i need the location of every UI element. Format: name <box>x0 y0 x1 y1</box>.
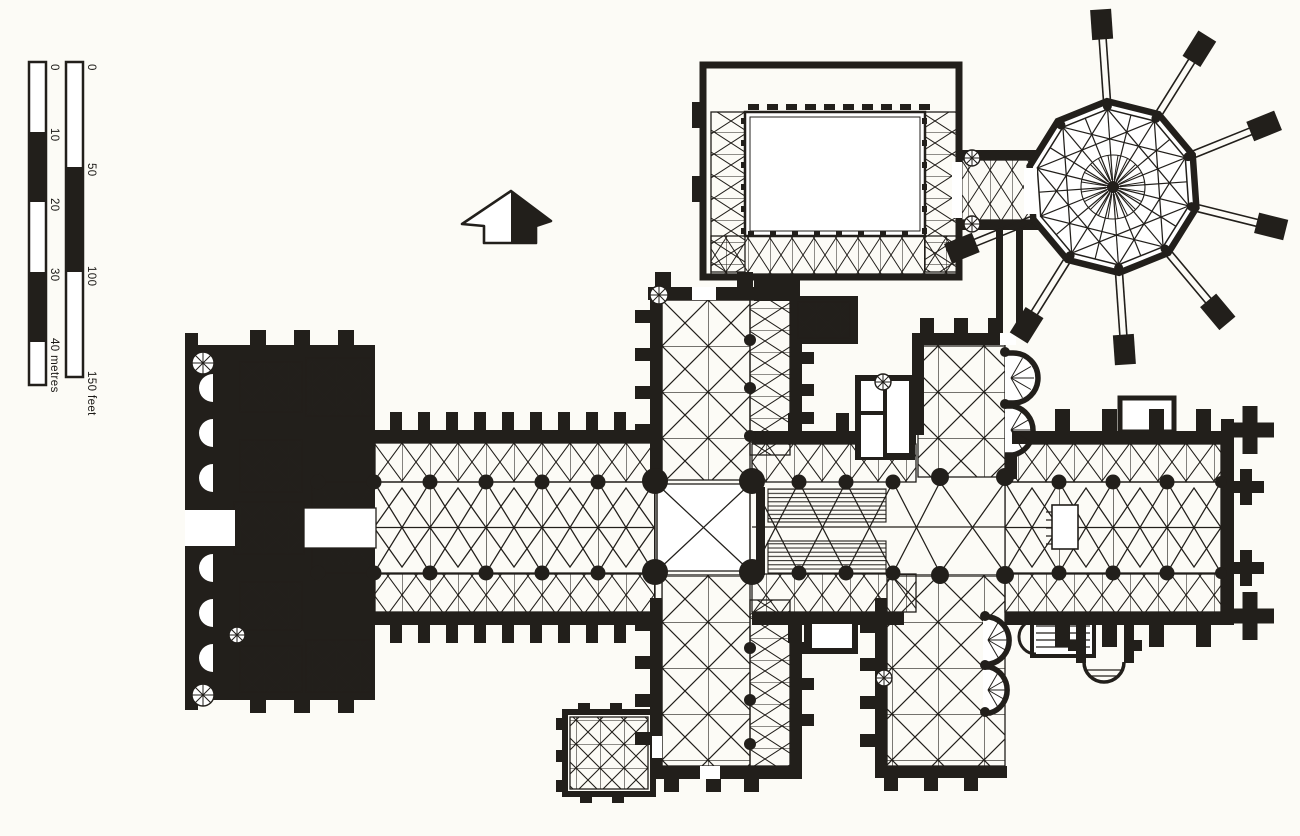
scale-end-label: 150 feet <box>85 371 97 416</box>
scale-tick-label: 30 <box>48 268 60 282</box>
north-sacristy <box>1120 398 1174 432</box>
scale-bar-metres: 0 10 20 30 40 metres <box>29 62 60 393</box>
scale-tick-label: 50 <box>85 163 97 177</box>
cathedral-plan-page: 0 10 20 30 40 metres 0 50 100 150 feet <box>0 0 1300 836</box>
scale-tick-label: 20 <box>48 198 60 212</box>
scale-tick-label: 10 <box>48 128 60 142</box>
scale-tick-label: 100 <box>85 266 97 286</box>
scale-tick-label: 0 <box>48 64 60 71</box>
scale-end-label: 40 metres <box>48 338 60 393</box>
scale-tick-label: 0 <box>85 64 97 71</box>
choir-stalls <box>752 482 1005 573</box>
north-arrow-icon <box>462 191 551 243</box>
scale-bars: 0 10 20 30 40 metres 0 50 100 150 feet <box>29 62 97 416</box>
shrine-base <box>1052 505 1078 549</box>
scale-bar-feet: 0 50 100 150 feet <box>66 62 97 416</box>
cathedral-floor-plan: 0 10 20 30 40 metres 0 50 100 150 feet <box>0 0 1300 836</box>
south-porch-arch <box>1084 662 1124 682</box>
